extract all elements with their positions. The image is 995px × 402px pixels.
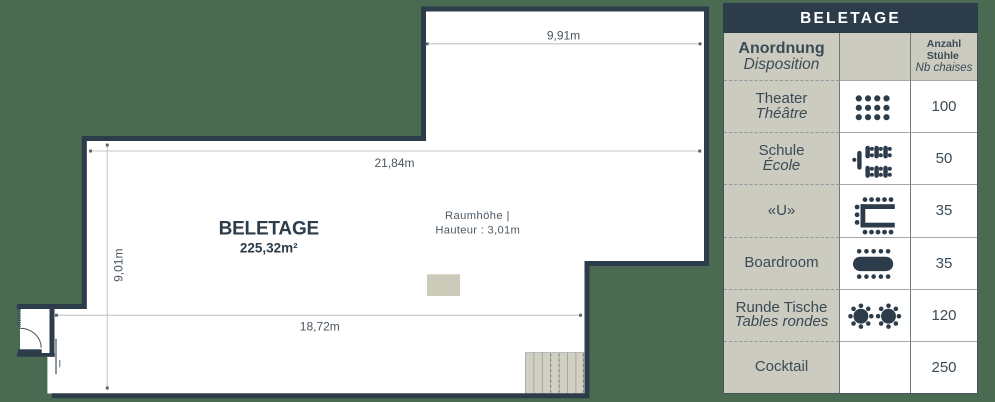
svg-text:BELETAGE: BELETAGE	[219, 218, 319, 239]
svg-text:18,72m: 18,72m	[300, 320, 340, 334]
svg-text:Hauteur : 3,01m: Hauteur : 3,01m	[435, 224, 520, 236]
svg-text:225,32m²: 225,32m²	[240, 240, 298, 255]
svg-text:Raumhöhe |: Raumhöhe |	[445, 210, 510, 222]
svg-text:9,01m: 9,01m	[112, 249, 126, 282]
svg-text:21,84m: 21,84m	[374, 156, 414, 170]
svg-text:9,91m: 9,91m	[547, 29, 580, 43]
